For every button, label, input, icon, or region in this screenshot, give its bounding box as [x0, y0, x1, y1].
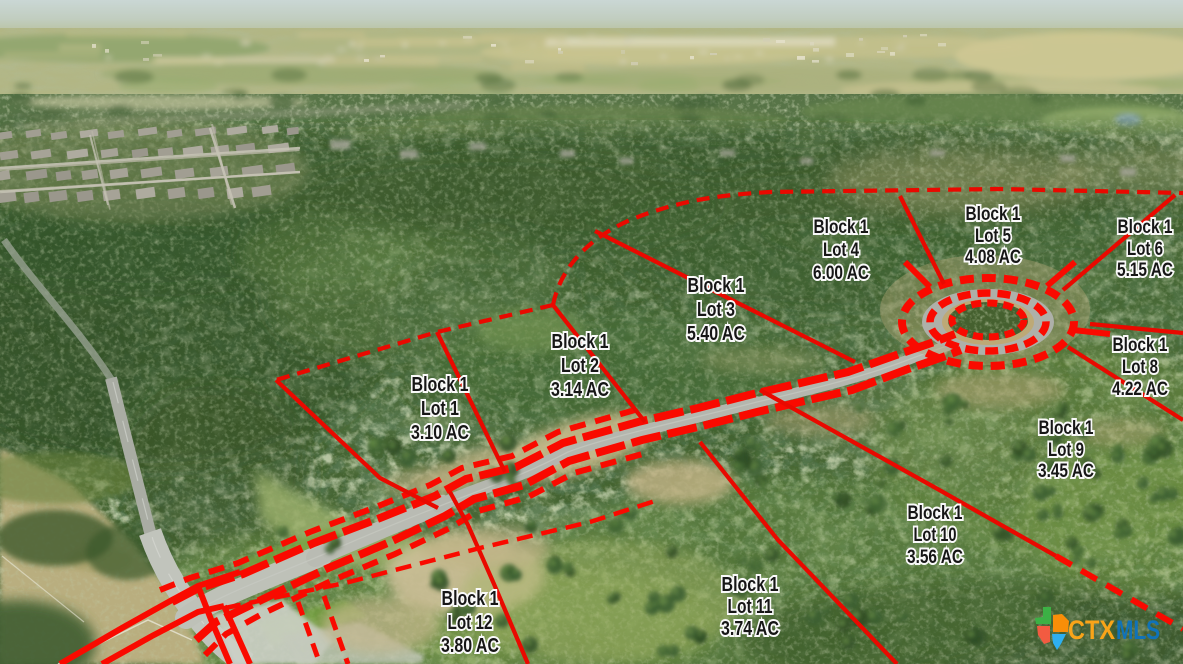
svg-text:Lot 12: Lot 12: [448, 612, 493, 634]
svg-text:Block 1: Block 1: [442, 588, 499, 610]
svg-text:5.15 AC: 5.15 AC: [1117, 260, 1173, 281]
svg-text:Lot 5: Lot 5: [975, 226, 1011, 247]
svg-text:MLS: MLS: [1116, 615, 1160, 645]
svg-text:Lot 1: Lot 1: [421, 398, 459, 420]
svg-text:4.22 AC: 4.22 AC: [1112, 379, 1168, 400]
svg-text:Block 1: Block 1: [1039, 418, 1094, 439]
svg-text:5.40 AC: 5.40 AC: [687, 323, 745, 345]
svg-text:3.14 AC: 3.14 AC: [551, 379, 609, 401]
svg-text:3.45 AC: 3.45 AC: [1038, 461, 1094, 482]
svg-text:Lot 8: Lot 8: [1122, 357, 1158, 378]
svg-text:Block 1: Block 1: [722, 574, 779, 596]
svg-text:Lot 2: Lot 2: [561, 355, 599, 377]
svg-text:3.74 AC: 3.74 AC: [721, 618, 779, 640]
svg-text:3.80 AC: 3.80 AC: [441, 635, 499, 657]
svg-text:3.56 AC: 3.56 AC: [907, 547, 963, 568]
svg-text:Lot 9: Lot 9: [1048, 440, 1084, 461]
svg-text:CTX: CTX: [1068, 615, 1115, 645]
svg-text:6.00 AC: 6.00 AC: [813, 263, 869, 284]
svg-text:Lot 10: Lot 10: [914, 525, 957, 546]
svg-text:Block 1: Block 1: [552, 331, 609, 353]
svg-text:Block 1: Block 1: [908, 503, 963, 524]
svg-text:Lot 3: Lot 3: [697, 299, 735, 321]
svg-text:Lot 11: Lot 11: [728, 596, 773, 618]
svg-text:4.08 AC: 4.08 AC: [965, 247, 1021, 268]
svg-text:Block 1: Block 1: [412, 374, 469, 396]
svg-text:3.10 AC: 3.10 AC: [411, 422, 469, 444]
svg-text:Block 1: Block 1: [966, 204, 1021, 225]
svg-text:Block 1: Block 1: [688, 275, 745, 297]
svg-text:Lot 4: Lot 4: [823, 240, 859, 261]
svg-text:Block 1: Block 1: [814, 217, 869, 238]
svg-text:Lot 6: Lot 6: [1127, 239, 1163, 260]
svg-text:Block 1: Block 1: [1118, 217, 1173, 238]
svg-text:Block 1: Block 1: [1113, 335, 1168, 356]
